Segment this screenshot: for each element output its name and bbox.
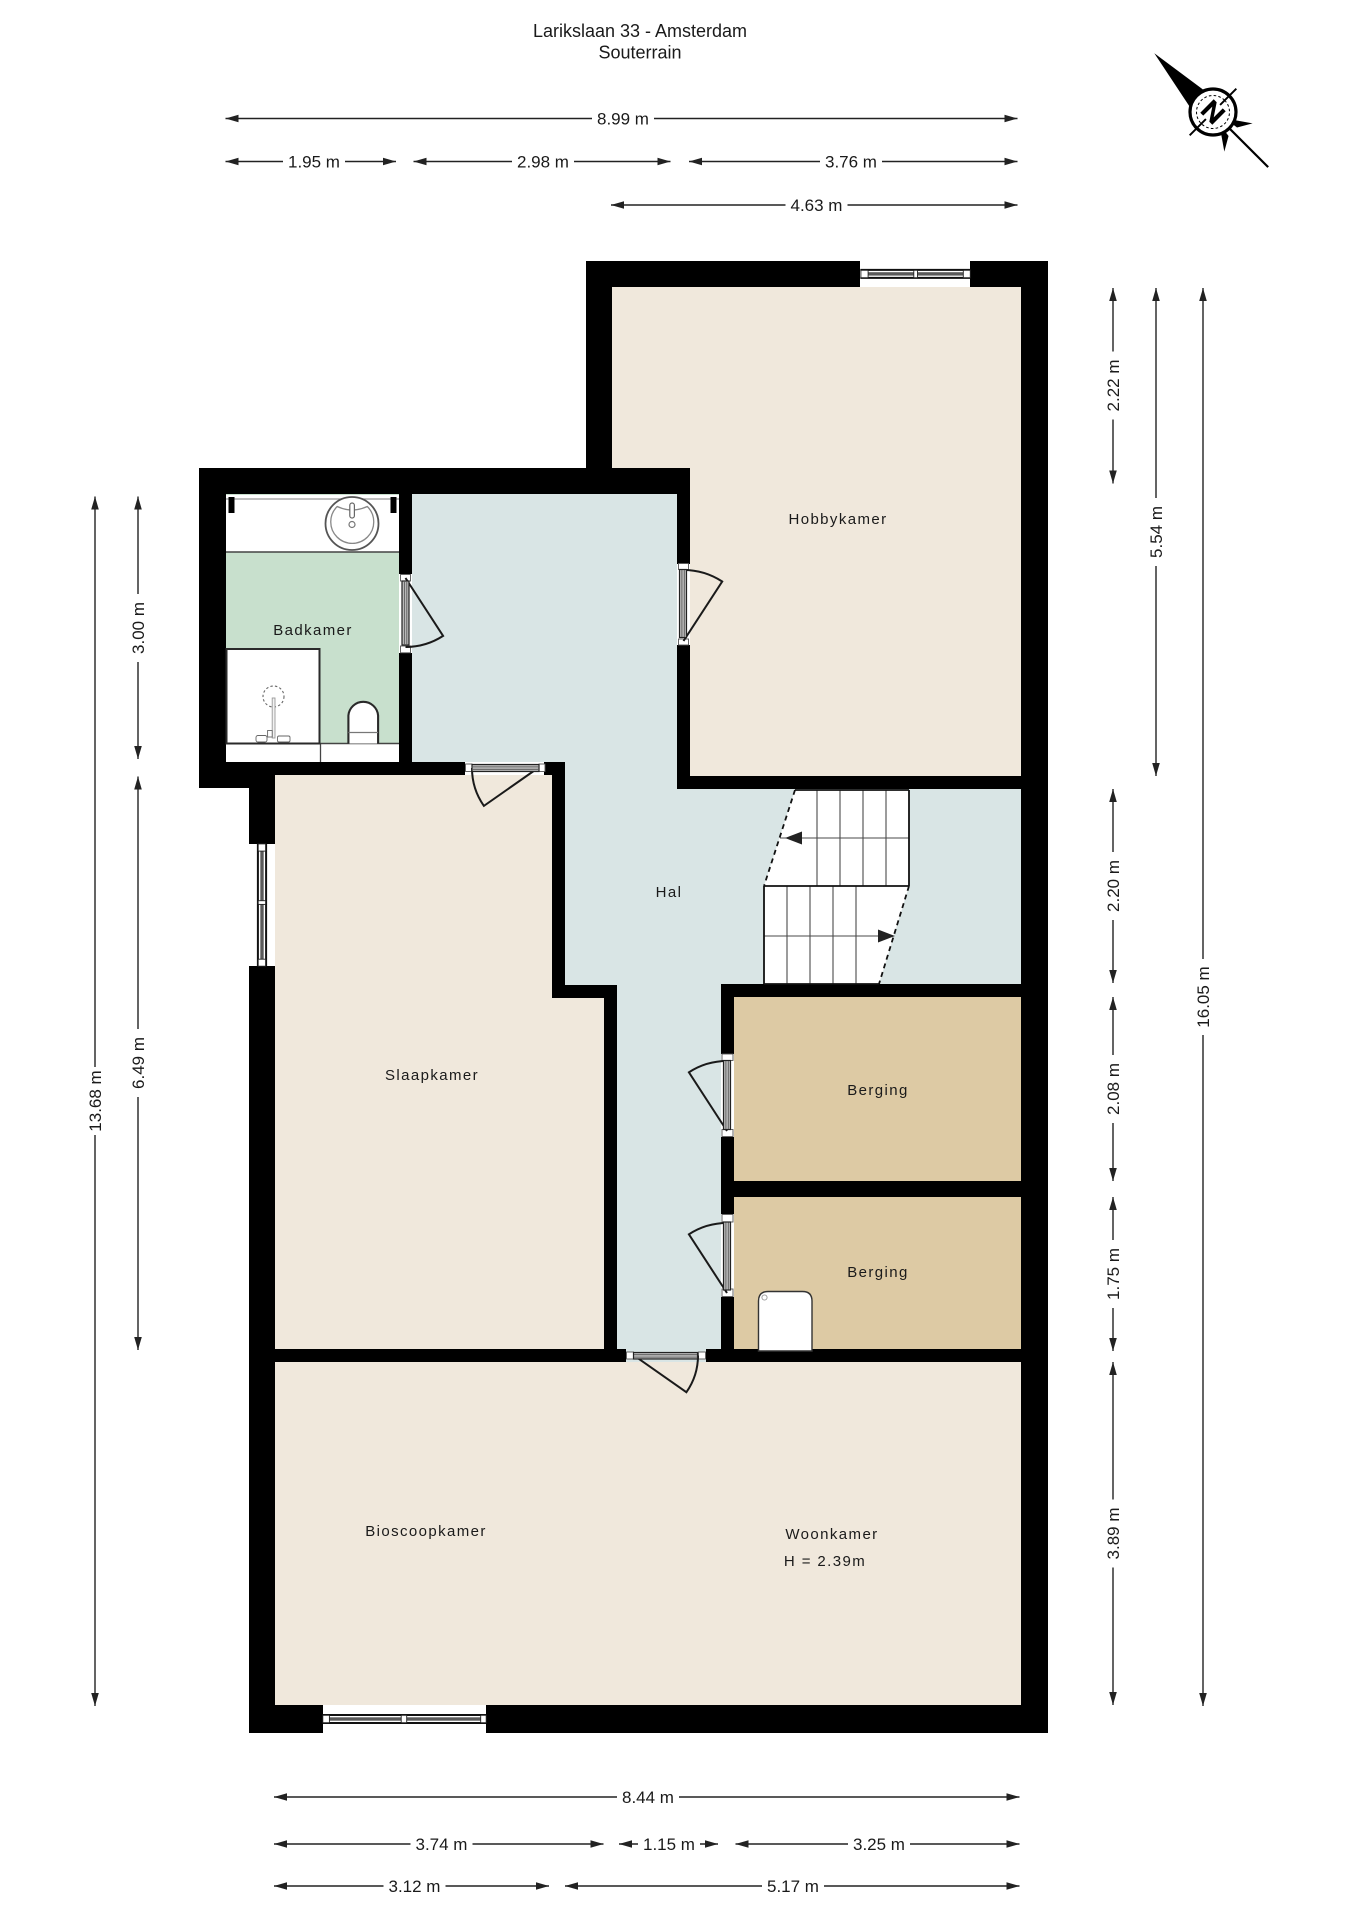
- svg-text:Bioscoopkamer: Bioscoopkamer: [365, 1523, 487, 1540]
- svg-text:16.05 m: 16.05 m: [1194, 966, 1213, 1027]
- svg-text:Badkamer: Badkamer: [273, 622, 353, 639]
- svg-text:2.22 m: 2.22 m: [1104, 360, 1123, 412]
- svg-text:3.76 m: 3.76 m: [825, 153, 877, 172]
- svg-text:Hal: Hal: [656, 884, 683, 901]
- svg-text:Berging: Berging: [847, 1082, 909, 1099]
- svg-text:3.12 m: 3.12 m: [389, 1877, 441, 1896]
- svg-text:3.00 m: 3.00 m: [129, 602, 148, 654]
- svg-text:2.20 m: 2.20 m: [1104, 860, 1123, 912]
- svg-text:1.15 m: 1.15 m: [643, 1835, 695, 1854]
- svg-text:3.89 m: 3.89 m: [1104, 1508, 1123, 1560]
- svg-text:Slaapkamer: Slaapkamer: [385, 1067, 479, 1084]
- svg-text:Hobbykamer: Hobbykamer: [788, 511, 887, 528]
- svg-text:Souterrain: Souterrain: [598, 43, 681, 63]
- svg-text:6.49 m: 6.49 m: [129, 1037, 148, 1089]
- svg-text:Larikslaan 33 - Amsterdam: Larikslaan 33 - Amsterdam: [533, 21, 747, 41]
- svg-text:2.08 m: 2.08 m: [1104, 1063, 1123, 1115]
- svg-text:2.98 m: 2.98 m: [517, 153, 569, 172]
- svg-text:8.44 m: 8.44 m: [622, 1788, 674, 1807]
- svg-text:13.68 m: 13.68 m: [86, 1070, 105, 1131]
- svg-text:1.75 m: 1.75 m: [1104, 1248, 1123, 1300]
- svg-text:3.25 m: 3.25 m: [853, 1835, 905, 1854]
- svg-text:4.63 m: 4.63 m: [791, 196, 843, 215]
- svg-text:Woonkamer: Woonkamer: [785, 1526, 878, 1543]
- svg-text:H = 2.39m: H = 2.39m: [784, 1553, 866, 1570]
- svg-text:5.17 m: 5.17 m: [767, 1877, 819, 1896]
- svg-text:1.95 m: 1.95 m: [288, 153, 340, 172]
- svg-text:5.54 m: 5.54 m: [1147, 506, 1166, 558]
- svg-text:Berging: Berging: [847, 1264, 909, 1281]
- svg-text:8.99 m: 8.99 m: [597, 110, 649, 129]
- svg-text:3.74 m: 3.74 m: [416, 1835, 468, 1854]
